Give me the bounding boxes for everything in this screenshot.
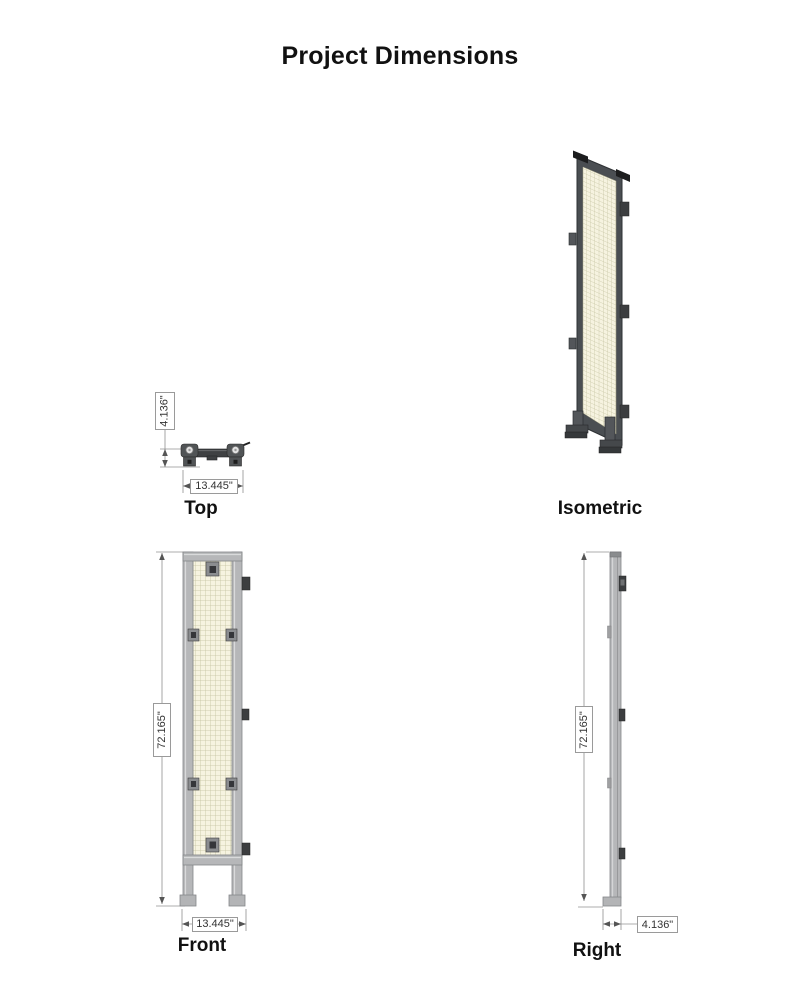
iso-bracket-3	[620, 405, 629, 418]
front-connector-2	[242, 709, 249, 720]
right-depth-dim-box: 4.136"	[637, 916, 678, 933]
front-width-dim-box: 13.445"	[192, 917, 238, 932]
top-width-dim-value: 13.445"	[195, 480, 233, 492]
top-depth-dim-value: 4.136"	[159, 395, 171, 426]
front-mesh	[193, 561, 232, 855]
right-height-dim-value: 72.165"	[578, 711, 590, 749]
view-isometric: Isometric	[540, 145, 700, 525]
right-tab-1	[608, 626, 612, 638]
view-top: 4.136" 13.445" Top	[140, 385, 270, 525]
right-profile	[603, 552, 626, 906]
right-depth-dim-value: 4.136"	[642, 919, 673, 931]
top-depth-dim-box: 4.136"	[155, 392, 175, 430]
iso-bracket-1	[620, 202, 629, 216]
front-panel	[180, 552, 250, 906]
front-right-foot	[229, 895, 245, 906]
view-front: 72.165" 13.445" Front	[140, 545, 310, 960]
right-tab-2	[608, 778, 612, 788]
front-height-dim-box: 72.165"	[153, 703, 171, 757]
iso-connector-2	[569, 338, 576, 349]
front-view-label: Front	[140, 935, 264, 957]
isometric-view-label: Isometric	[540, 498, 660, 520]
right-bracket-3	[619, 848, 625, 859]
right-depth-dimension	[603, 909, 637, 930]
top-right-bracket	[227, 444, 244, 466]
front-left-foot	[180, 895, 196, 906]
right-bracket-2	[619, 709, 625, 721]
right-height-dim-box: 72.165"	[575, 706, 593, 753]
front-right-post	[232, 552, 242, 897]
right-bracket-1-inner	[621, 580, 625, 586]
top-view-panel	[181, 443, 250, 467]
iso-mesh	[583, 167, 616, 434]
iso-bracket-2	[620, 305, 629, 318]
front-top-rail	[183, 552, 242, 561]
right-foot	[603, 897, 621, 906]
right-top-cap	[610, 552, 621, 557]
isometric-view-drawing	[540, 145, 700, 475]
page-title: Project Dimensions	[0, 42, 800, 71]
iso-panel	[565, 151, 630, 454]
view-right: 72.165" 4.136" Right	[555, 545, 735, 960]
top-left-bracket	[181, 444, 198, 466]
top-width-dim-box: 13.445"	[190, 479, 238, 494]
front-left-post	[183, 552, 193, 897]
right-view-label: Right	[555, 940, 639, 962]
front-width-dim-value: 13.445"	[196, 918, 234, 930]
front-connector-1	[242, 577, 250, 590]
front-bottom-rail	[183, 855, 242, 865]
front-height-dim-value: 72.165"	[156, 711, 168, 749]
right-post	[610, 552, 621, 898]
top-view-label: Top	[140, 498, 262, 520]
front-connector-3	[242, 843, 250, 855]
iso-connector-1	[569, 233, 576, 245]
